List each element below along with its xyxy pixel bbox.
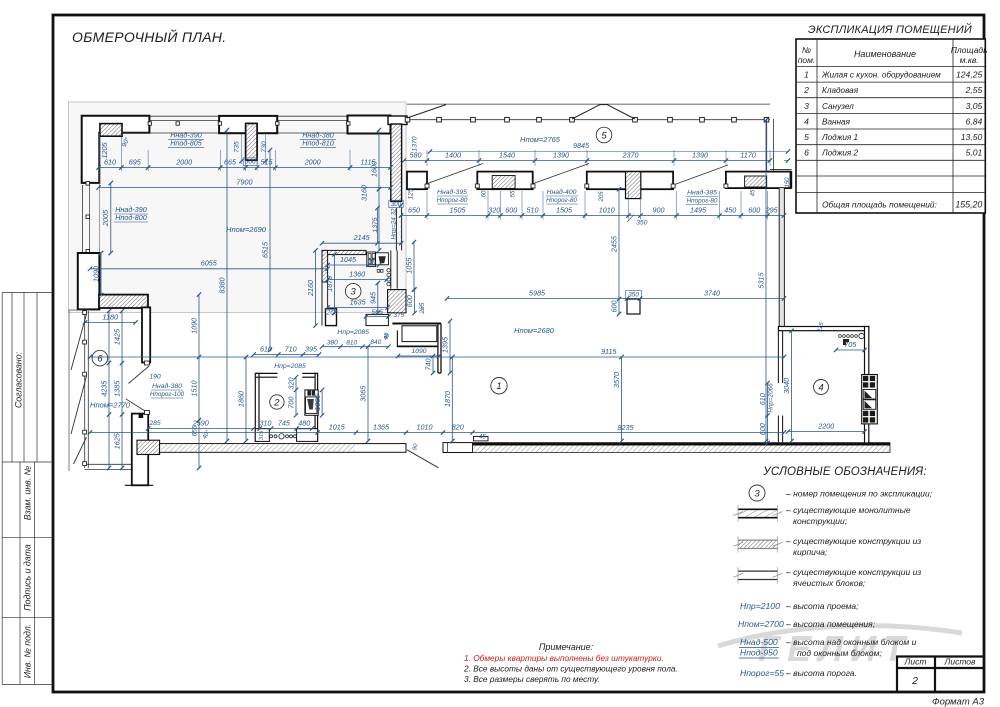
svg-text:6055: 6055 [201, 259, 218, 268]
svg-text:4: 4 [818, 382, 823, 393]
svg-text:1425: 1425 [113, 328, 122, 345]
svg-text:295: 295 [765, 205, 779, 214]
svg-text:Площадь: Площадь [951, 45, 988, 55]
svg-text:6: 6 [97, 354, 103, 365]
svg-text:1370: 1370 [412, 136, 419, 151]
svg-text:1010: 1010 [599, 205, 615, 214]
svg-text:600: 600 [610, 301, 619, 313]
svg-text:Нпр=2085: Нпр=2085 [337, 329, 369, 336]
svg-text:1. Обмеры квартиры выполнены б: 1. Обмеры квартиры выполнены без штукату… [464, 653, 664, 663]
svg-text:2: 2 [273, 397, 280, 408]
svg-text:2000: 2000 [175, 158, 192, 167]
svg-text:4235: 4235 [100, 380, 109, 397]
svg-text:под оконным блоком;: под оконным блоком; [797, 648, 882, 658]
svg-text:ячеистых блоков;: ячеистых блоков; [792, 578, 866, 588]
svg-text:1090: 1090 [411, 348, 426, 355]
svg-text:60: 60 [482, 190, 488, 197]
svg-text:5315: 5315 [757, 272, 766, 289]
svg-text:6515: 6515 [261, 241, 270, 258]
svg-text:730: 730 [261, 141, 268, 153]
svg-text:3160: 3160 [360, 185, 369, 201]
svg-text:9845: 9845 [573, 141, 590, 150]
svg-text:конструкции;: конструкции; [793, 516, 848, 526]
svg-text:2005: 2005 [101, 209, 110, 227]
svg-text:655: 655 [191, 425, 198, 436]
svg-text:190: 190 [149, 374, 161, 381]
svg-text:Нпорог=55: Нпорог=55 [740, 668, 784, 678]
svg-text:1625: 1625 [113, 432, 122, 449]
svg-text:320: 320 [488, 205, 500, 214]
svg-text:– существующие монолитные: – существующие монолитные [785, 505, 911, 515]
svg-text:1860: 1860 [313, 395, 322, 411]
svg-text:ЭКСПЛИКАЦИЯ ПОМЕЩЕНИЙ: ЭКСПЛИКАЦИЯ ПОМЕЩЕНИЙ [808, 23, 972, 36]
svg-text:1360: 1360 [349, 270, 365, 279]
svg-text:1635: 1635 [350, 298, 367, 307]
svg-text:Нпр=2066: Нпр=2066 [768, 383, 775, 413]
svg-text:Нпр=2100: Нпр=2100 [740, 601, 780, 611]
svg-text:Нпод-950: Нпод-950 [740, 648, 778, 658]
svg-text:600: 600 [748, 205, 760, 214]
svg-text:5: 5 [601, 130, 607, 141]
svg-text:2200: 2200 [817, 421, 834, 430]
svg-text:1045: 1045 [340, 255, 357, 264]
svg-text:3740: 3740 [704, 288, 720, 297]
svg-text:125: 125 [408, 188, 415, 199]
svg-text:665: 665 [224, 158, 237, 167]
svg-text:Общая площадь помещений:: Общая площадь помещений: [822, 200, 937, 210]
svg-text:2,55: 2,55 [965, 85, 983, 95]
svg-text:2: 2 [911, 675, 918, 687]
svg-text:320: 320 [287, 378, 296, 390]
svg-text:380: 380 [327, 340, 338, 347]
svg-text:1015: 1015 [329, 423, 346, 432]
svg-text:515: 515 [261, 158, 274, 167]
svg-text:650: 650 [408, 205, 420, 214]
svg-text:700: 700 [287, 397, 296, 409]
svg-text:3065: 3065 [359, 385, 368, 402]
svg-text:Нпорог-100: Нпорог-100 [150, 391, 185, 398]
svg-text:480: 480 [298, 419, 310, 428]
svg-text:610: 610 [758, 393, 767, 405]
svg-text:150: 150 [785, 177, 791, 188]
svg-text:2000: 2000 [304, 158, 321, 167]
svg-text:8235: 8235 [618, 423, 635, 432]
svg-text:Формат А3: Формат А3 [932, 696, 985, 707]
svg-text:м.кв.: м.кв. [960, 55, 979, 65]
svg-text:315: 315 [259, 430, 265, 440]
svg-text:1010: 1010 [417, 423, 433, 432]
svg-text:Ннад-380: Ннад-380 [152, 382, 182, 390]
svg-text:Нпорог-80: Нпорог-80 [687, 198, 718, 205]
svg-text:840: 840 [370, 339, 381, 346]
svg-text:4: 4 [804, 116, 809, 126]
svg-text:Лоджия 2: Лоджия 2 [821, 149, 859, 158]
svg-text:3,05: 3,05 [966, 101, 983, 111]
svg-text:735: 735 [234, 141, 241, 153]
svg-text:900: 900 [653, 205, 665, 214]
svg-text:1055: 1055 [405, 257, 414, 274]
svg-text:1505: 1505 [450, 205, 467, 214]
svg-text:2. Все высоты даны от существу: 2. Все высоты даны от существующего уров… [463, 664, 678, 674]
svg-text:– существующие конструкции из: – существующие конструкции из [785, 536, 921, 546]
svg-text:600: 600 [405, 295, 414, 307]
svg-text:124,25: 124,25 [956, 69, 983, 79]
svg-text:Взам. инв. №: Взам. инв. № [23, 466, 33, 520]
svg-text:Наименование: Наименование [854, 49, 916, 59]
svg-text:Нпр=24 32: Нпр=24 32 [391, 208, 398, 239]
svg-text:155,20: 155,20 [955, 200, 982, 210]
svg-text:3: 3 [804, 101, 809, 111]
svg-text:Нпорог-80: Нпорог-80 [546, 197, 577, 204]
svg-text:– номер помещения по экспликац: – номер помещения по экспликации; [785, 489, 933, 499]
svg-text:3: 3 [754, 488, 760, 499]
svg-text:565: 565 [372, 309, 384, 316]
svg-text:2: 2 [803, 85, 809, 95]
svg-text:Нпр=2085: Нпр=2085 [274, 363, 306, 370]
svg-text:810: 810 [346, 340, 357, 347]
svg-text:3570: 3570 [612, 372, 621, 388]
svg-text:Ннад-385: Ннад-385 [687, 189, 717, 197]
svg-text:Листов: Листов [944, 656, 977, 666]
svg-text:5,01: 5,01 [966, 148, 983, 158]
svg-text:1495: 1495 [690, 205, 707, 214]
svg-text:500: 500 [245, 159, 256, 166]
svg-text:1505: 1505 [556, 205, 573, 214]
svg-text:350: 350 [628, 292, 639, 299]
svg-text:Примечание:: Примечание: [539, 642, 594, 652]
svg-text:Нпом=2680: Нпом=2680 [514, 326, 555, 335]
svg-text:№: № [802, 45, 811, 55]
svg-text:– высота проема;: – высота проема; [785, 601, 859, 611]
svg-text:– существующие конструкции из: – существующие конструкции из [785, 567, 921, 577]
svg-text:1205: 1205 [100, 142, 109, 159]
svg-text:1600: 1600 [370, 161, 379, 177]
svg-text:пом.: пом. [798, 55, 816, 65]
svg-text:820: 820 [452, 423, 464, 432]
svg-text:3: 3 [351, 287, 357, 298]
svg-text:740: 740 [424, 359, 433, 371]
svg-text:205: 205 [599, 191, 605, 203]
svg-text:7900: 7900 [237, 178, 253, 187]
svg-text:– высота над оконным блоком и: – высота над оконным блоком и [785, 637, 917, 647]
svg-text:– высота помещения;: – высота помещения; [785, 619, 876, 629]
svg-text:1510: 1510 [189, 381, 198, 397]
svg-text:395: 395 [305, 345, 318, 354]
svg-text:285: 285 [148, 420, 161, 427]
svg-text:695: 695 [129, 158, 142, 167]
svg-text:745: 745 [278, 419, 291, 428]
svg-text:6,84: 6,84 [966, 116, 983, 126]
svg-text:945: 945 [368, 291, 377, 304]
svg-text:Ннад-395: Ннад-395 [437, 188, 467, 196]
svg-text:Согласовано:: Согласовано: [14, 351, 24, 408]
svg-text:1860: 1860 [236, 391, 245, 407]
svg-text:1395: 1395 [440, 336, 449, 353]
svg-text:Нпод-800: Нпод-800 [115, 213, 147, 222]
svg-text:Нпом=2690: Нпом=2690 [226, 225, 267, 234]
svg-text:300: 300 [391, 201, 402, 208]
svg-text:2145: 2145 [353, 233, 371, 242]
svg-text:кирпича;: кирпича; [793, 547, 828, 557]
svg-text:6: 6 [804, 148, 809, 158]
svg-text:1870: 1870 [325, 276, 334, 292]
svg-text:Нпорог-80: Нпорог-80 [437, 197, 468, 204]
svg-text:510: 510 [527, 205, 539, 214]
svg-text:3040: 3040 [782, 378, 791, 394]
svg-text:ОБМЕРОЧНЫЙ ПЛАН.: ОБМЕРОЧНЫЙ ПЛАН. [72, 28, 227, 45]
svg-text:Нпом=2765: Нпом=2765 [520, 135, 561, 144]
svg-text:5985: 5985 [529, 288, 546, 297]
svg-text:1090: 1090 [189, 318, 198, 334]
svg-text:Нпод-805: Нпод-805 [170, 139, 203, 148]
svg-text:Нпом=2700: Нпом=2700 [738, 619, 784, 629]
svg-text:45: 45 [479, 435, 486, 441]
svg-text:9115: 9115 [601, 347, 617, 356]
svg-text:610: 610 [260, 345, 272, 354]
svg-text:УСЛОВНЫЕ ОБОЗНАЧЕНИЯ:: УСЛОВНЫЕ ОБОЗНАЧЕНИЯ: [762, 466, 926, 478]
svg-text:450: 450 [724, 205, 736, 214]
svg-text:1365: 1365 [373, 423, 390, 432]
svg-text:Лист: Лист [904, 656, 927, 666]
svg-text:2160: 2160 [306, 280, 315, 297]
svg-text:1870: 1870 [443, 391, 452, 407]
svg-text:2455: 2455 [610, 235, 619, 253]
svg-text:3. Все размеры сверять по мес: 3. Все размеры сверять по месту. [464, 674, 600, 684]
svg-text:1385: 1385 [113, 380, 122, 397]
svg-text:705: 705 [844, 340, 857, 349]
svg-text:Инв. № подл.: Инв. № подл. [23, 624, 33, 679]
svg-text:13,50: 13,50 [961, 132, 983, 142]
svg-text:Лоджия 1: Лоджия 1 [821, 133, 858, 142]
svg-text:– высота порога.: – высота порога. [785, 668, 857, 678]
svg-text:260: 260 [326, 310, 338, 317]
svg-text:1: 1 [804, 69, 809, 79]
svg-text:Ннад-400: Ннад-400 [547, 188, 577, 196]
svg-text:1180: 1180 [103, 313, 118, 322]
svg-text:375: 375 [393, 312, 404, 319]
svg-text:310: 310 [259, 419, 271, 428]
svg-text:Нпом=2770: Нпом=2770 [90, 401, 131, 410]
svg-text:Нпод-810: Нпод-810 [302, 139, 334, 148]
svg-text:Ннад-500: Ннад-500 [740, 637, 778, 647]
svg-text:1375: 1375 [372, 217, 379, 232]
svg-text:95: 95 [384, 332, 390, 339]
svg-text:95: 95 [368, 259, 375, 265]
svg-text:Ванная: Ванная [822, 117, 851, 126]
svg-text:Подпись и дата: Подпись и дата [23, 544, 33, 611]
svg-text:710: 710 [285, 345, 297, 354]
svg-text:55: 55 [511, 190, 517, 197]
svg-text:600: 600 [758, 423, 767, 435]
svg-text:1: 1 [496, 381, 501, 392]
svg-text:Кладовая: Кладовая [822, 86, 859, 95]
svg-text:8380: 8380 [218, 278, 227, 294]
svg-text:45: 45 [751, 189, 757, 196]
svg-text:350: 350 [636, 220, 648, 227]
svg-text:5: 5 [804, 132, 809, 142]
svg-text:Жилая с кухон. оборудованием: Жилая с кухон. оборудованием [821, 70, 941, 79]
svg-text:Санузел: Санузел [822, 102, 854, 111]
svg-text:600: 600 [505, 205, 517, 214]
svg-text:580: 580 [410, 150, 422, 159]
